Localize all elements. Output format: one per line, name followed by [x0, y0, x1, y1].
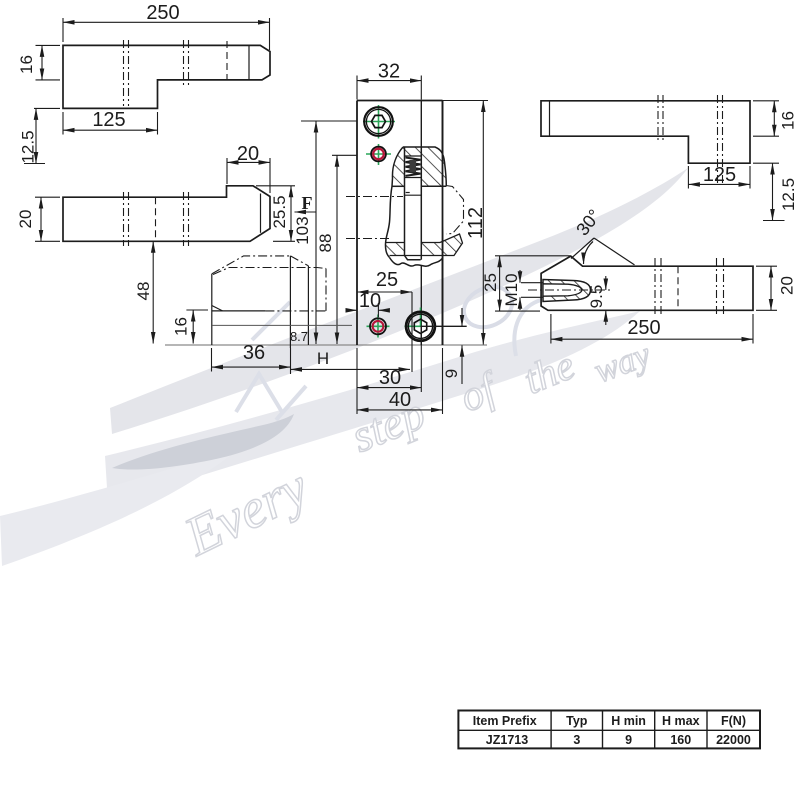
- svg-text:25: 25: [376, 269, 398, 291]
- svg-text:12.5: 12.5: [779, 178, 798, 211]
- svg-text:16: 16: [17, 55, 36, 74]
- svg-text:12.5: 12.5: [19, 130, 38, 163]
- svg-text:112: 112: [465, 207, 487, 239]
- svg-text:H min: H min: [611, 714, 646, 728]
- svg-text:250: 250: [146, 2, 179, 24]
- svg-text:Typ: Typ: [566, 714, 588, 728]
- svg-text:16: 16: [172, 317, 191, 336]
- svg-text:F: F: [302, 193, 313, 213]
- svg-text:32: 32: [378, 61, 400, 83]
- svg-text:20: 20: [778, 276, 797, 295]
- svg-text:M10: M10: [502, 273, 521, 306]
- svg-text:8.7: 8.7: [290, 329, 308, 344]
- svg-text:F(N): F(N): [721, 714, 746, 728]
- svg-text:Item Prefix: Item Prefix: [473, 714, 537, 728]
- svg-text:36: 36: [243, 342, 265, 364]
- svg-text:40: 40: [389, 389, 411, 411]
- svg-text:25.5: 25.5: [270, 195, 289, 228]
- svg-text:160: 160: [670, 733, 691, 747]
- svg-text:3: 3: [573, 733, 580, 747]
- svg-text:H: H: [317, 349, 329, 368]
- svg-text:16: 16: [779, 111, 798, 130]
- svg-text:125: 125: [92, 109, 125, 131]
- svg-text:10: 10: [359, 290, 381, 312]
- svg-text:9: 9: [625, 733, 632, 747]
- svg-text:30: 30: [379, 367, 401, 389]
- svg-text:20: 20: [16, 210, 35, 229]
- svg-text:88: 88: [316, 234, 335, 253]
- svg-text:22000: 22000: [716, 733, 751, 747]
- svg-text:125: 125: [703, 164, 736, 186]
- svg-text:JZ1713: JZ1713: [486, 733, 528, 747]
- svg-text:103: 103: [293, 216, 312, 244]
- svg-text:H max: H max: [662, 714, 700, 728]
- svg-text:20: 20: [237, 143, 259, 165]
- svg-text:9.5: 9.5: [587, 285, 606, 309]
- svg-text:250: 250: [627, 317, 660, 339]
- svg-text:25: 25: [481, 273, 500, 292]
- svg-text:9: 9: [442, 369, 461, 378]
- svg-text:48: 48: [134, 282, 153, 301]
